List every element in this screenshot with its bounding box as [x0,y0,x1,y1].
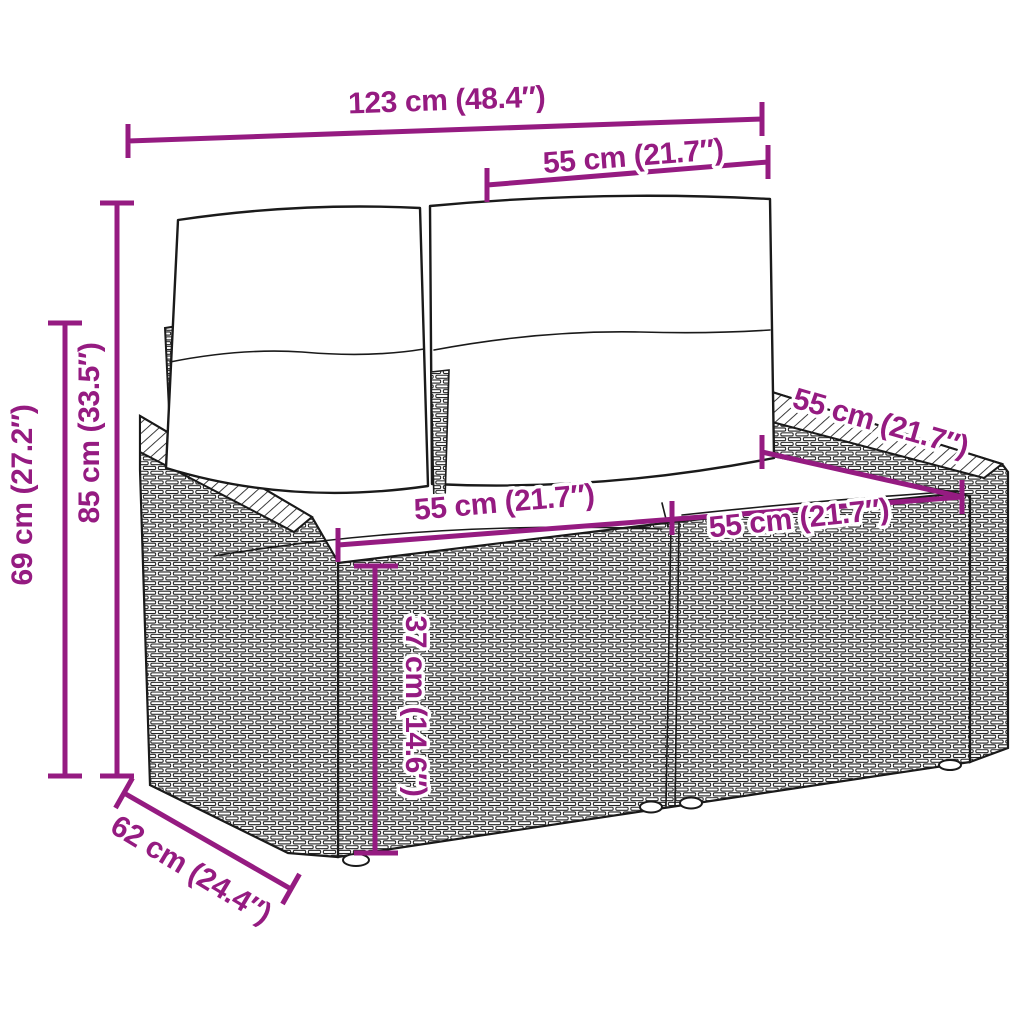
dim-armrest-height: 69 cm (27.2″) [6,323,82,776]
dimension-diagram: 123 cm (48.4″) 55 cm (21.7″) 85 cm (33.5… [0,0,1024,1024]
foot [939,760,961,770]
dim-backrest-width: 55 cm (21.7″) [487,133,768,202]
dim-backrest-width-label: 55 cm (21.7″) [542,133,725,180]
dim-total-height-label: 85 cm (33.5″) [73,343,106,524]
foot [640,802,662,813]
middle-back-post [431,370,449,503]
dim-armrest-height-label: 69 cm (27.2″) [6,405,39,586]
back-cushion-left [166,207,428,493]
dim-total-width-label: 123 cm (48.4″) [348,81,546,121]
dim-total-height: 85 cm (33.5″) [73,203,134,776]
dim-seat-height-label: 37 cm (14.6″) [399,616,432,797]
back-cushion-right [430,196,774,486]
foot [680,798,702,809]
bench-dimension-drawing: 123 cm (48.4″) 55 cm (21.7″) 85 cm (33.5… [0,0,1024,1024]
foot [343,854,369,866]
bench-drawing [140,196,1008,866]
